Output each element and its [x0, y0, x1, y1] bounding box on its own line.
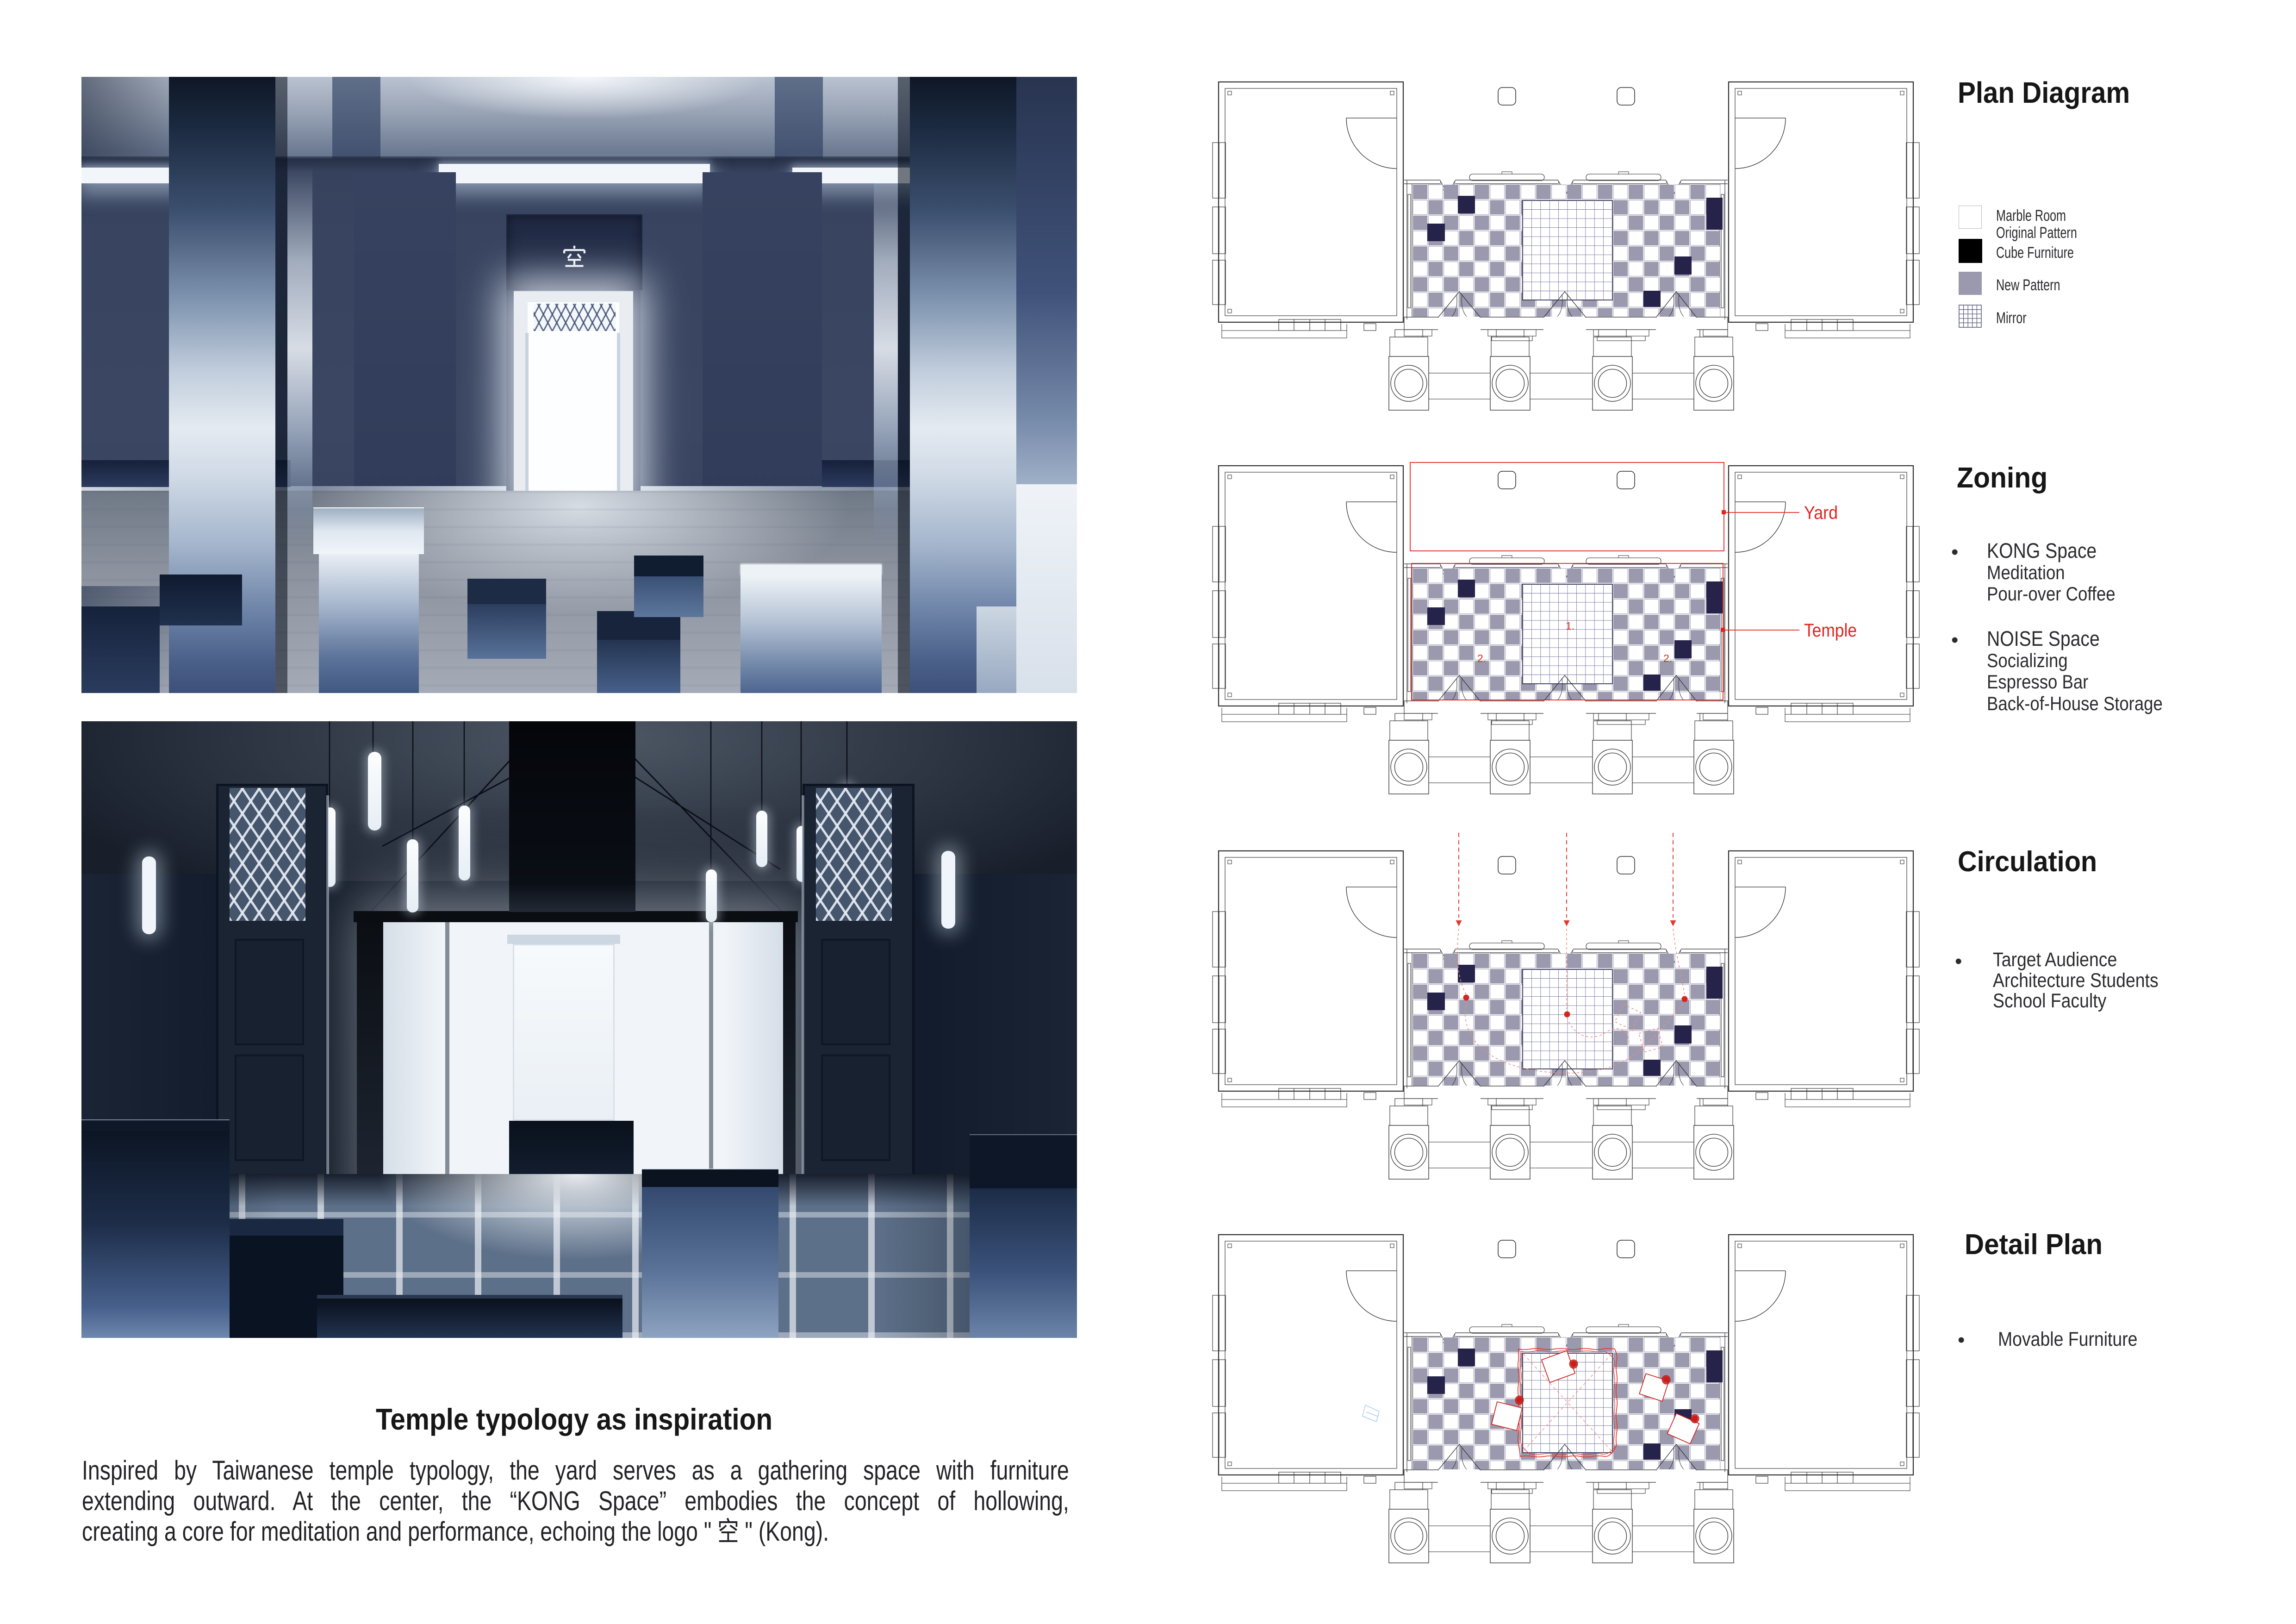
- svg-text:2.: 2.: [1663, 652, 1672, 664]
- svg-text:Yard: Yard: [1804, 503, 1838, 523]
- svg-text:1.: 1.: [1566, 620, 1574, 632]
- svg-text:Temple: Temple: [1804, 620, 1857, 641]
- svg-text:2.: 2.: [1477, 652, 1486, 664]
